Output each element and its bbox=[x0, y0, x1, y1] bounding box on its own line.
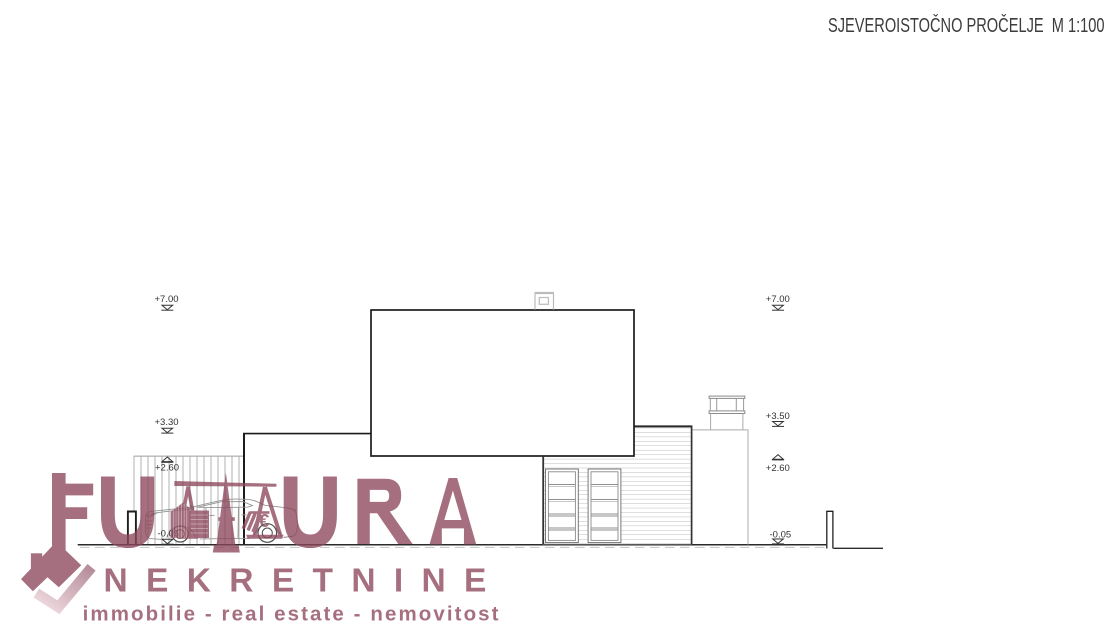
svg-text:+2.60: +2.60 bbox=[766, 463, 790, 474]
svg-text:+7.00: +7.00 bbox=[155, 294, 179, 305]
svg-text:+3.30: +3.30 bbox=[155, 417, 179, 428]
svg-text:immobilie - real estate - nemo: immobilie - real estate - nemovitost bbox=[83, 603, 499, 626]
svg-text:SJEVEROISTOČNO PROČELJE M 1:1: SJEVEROISTOČNO PROČELJE M 1:100 bbox=[828, 14, 1105, 37]
svg-text:+3.50: +3.50 bbox=[766, 411, 790, 422]
svg-text:+7.00: +7.00 bbox=[766, 294, 790, 305]
svg-text:NEKRETNINE: NEKRETNINE bbox=[104, 563, 487, 600]
svg-text:€: € bbox=[259, 510, 269, 531]
svg-text:+2.60: +2.60 bbox=[155, 463, 179, 474]
